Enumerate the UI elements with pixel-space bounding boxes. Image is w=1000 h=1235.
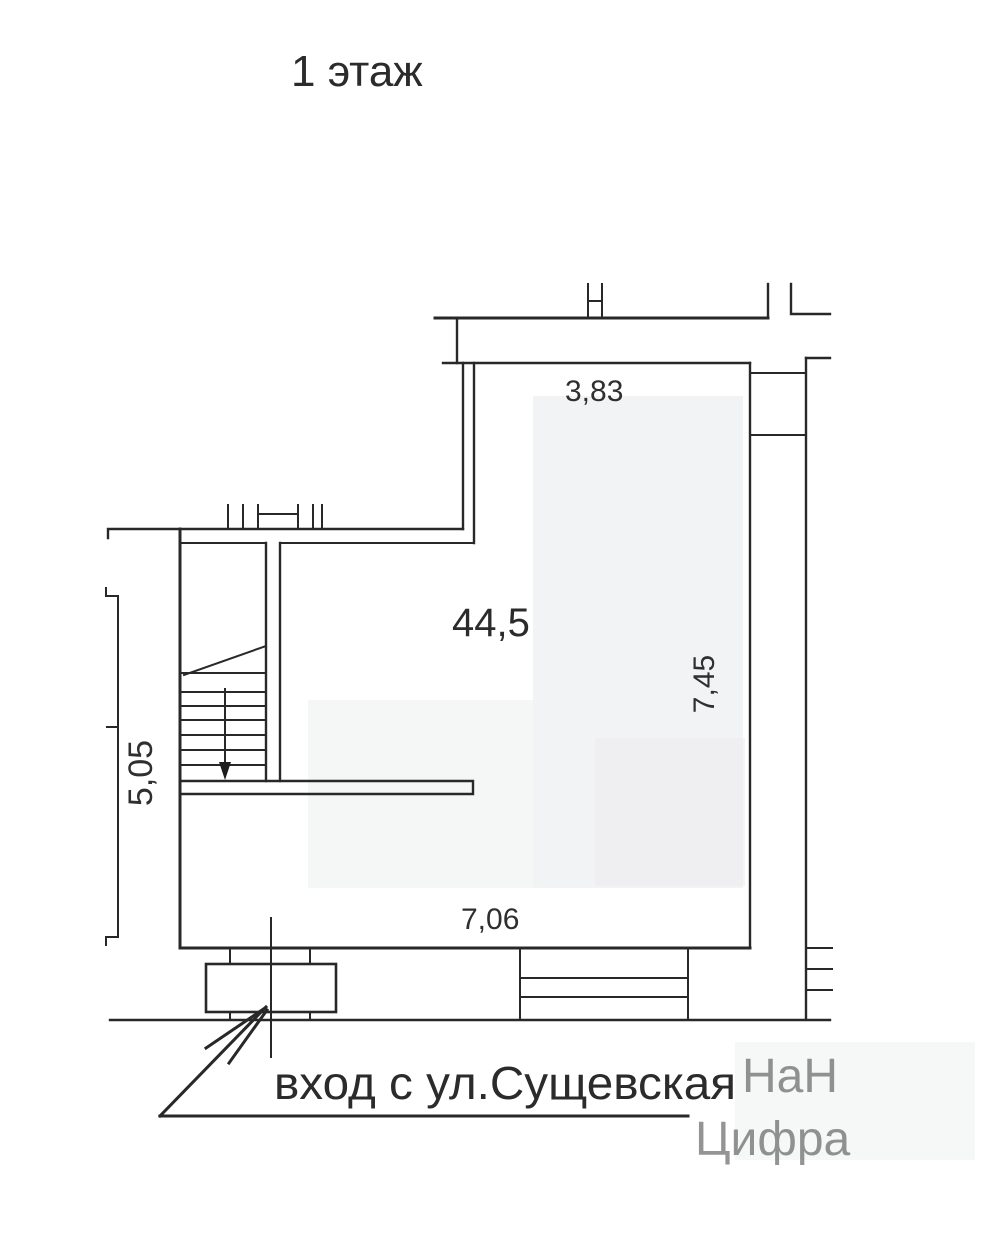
top-walls [435,284,830,363]
watermark-line2: Цифра [695,1113,851,1166]
stair-direction-arrow-head [219,762,231,780]
floor-plan-page: 1 этаж 3,83 44,5 7,45 5,05 7,06 НаН Цифр… [0,0,1000,1235]
right-steps-ticks [806,948,832,990]
dim-label-top: 3,83 [565,375,623,408]
neighbor-wall-corner [791,284,830,314]
dim-label-bottom: 7,06 [461,903,519,936]
room-shading [308,396,975,1160]
entrance-label: вход с ул.Сущевская [274,1057,736,1109]
stair-break-diagonal [184,646,266,675]
dim-hook-bottom [106,937,118,945]
bottom-walls [110,918,830,1057]
room-tint-rect [595,738,745,886]
dim-hook-top [106,588,118,596]
utility-shaft-dividers [750,373,806,435]
dim-label-right: 7,45 [688,655,721,713]
dimension-line-left [106,588,118,945]
dim-label-left: 5,05 [122,740,160,806]
room-area-label: 44,5 [452,601,530,645]
storefront-window-symbol [520,948,688,1020]
window-symbol-top [228,505,322,529]
watermark-line1: НаН [742,1050,838,1103]
arrow-barb [206,1008,265,1048]
wall-junction-h-symbol [588,284,602,318]
floor-plan-drawing: 1 этаж 3,83 44,5 7,45 5,05 7,06 НаН Цифр… [0,0,1000,1235]
arrow-shaft [160,1007,266,1116]
right-walls [750,358,832,1018]
floor-title: 1 этаж [291,47,423,96]
corridor-outer-wall [108,529,463,538]
